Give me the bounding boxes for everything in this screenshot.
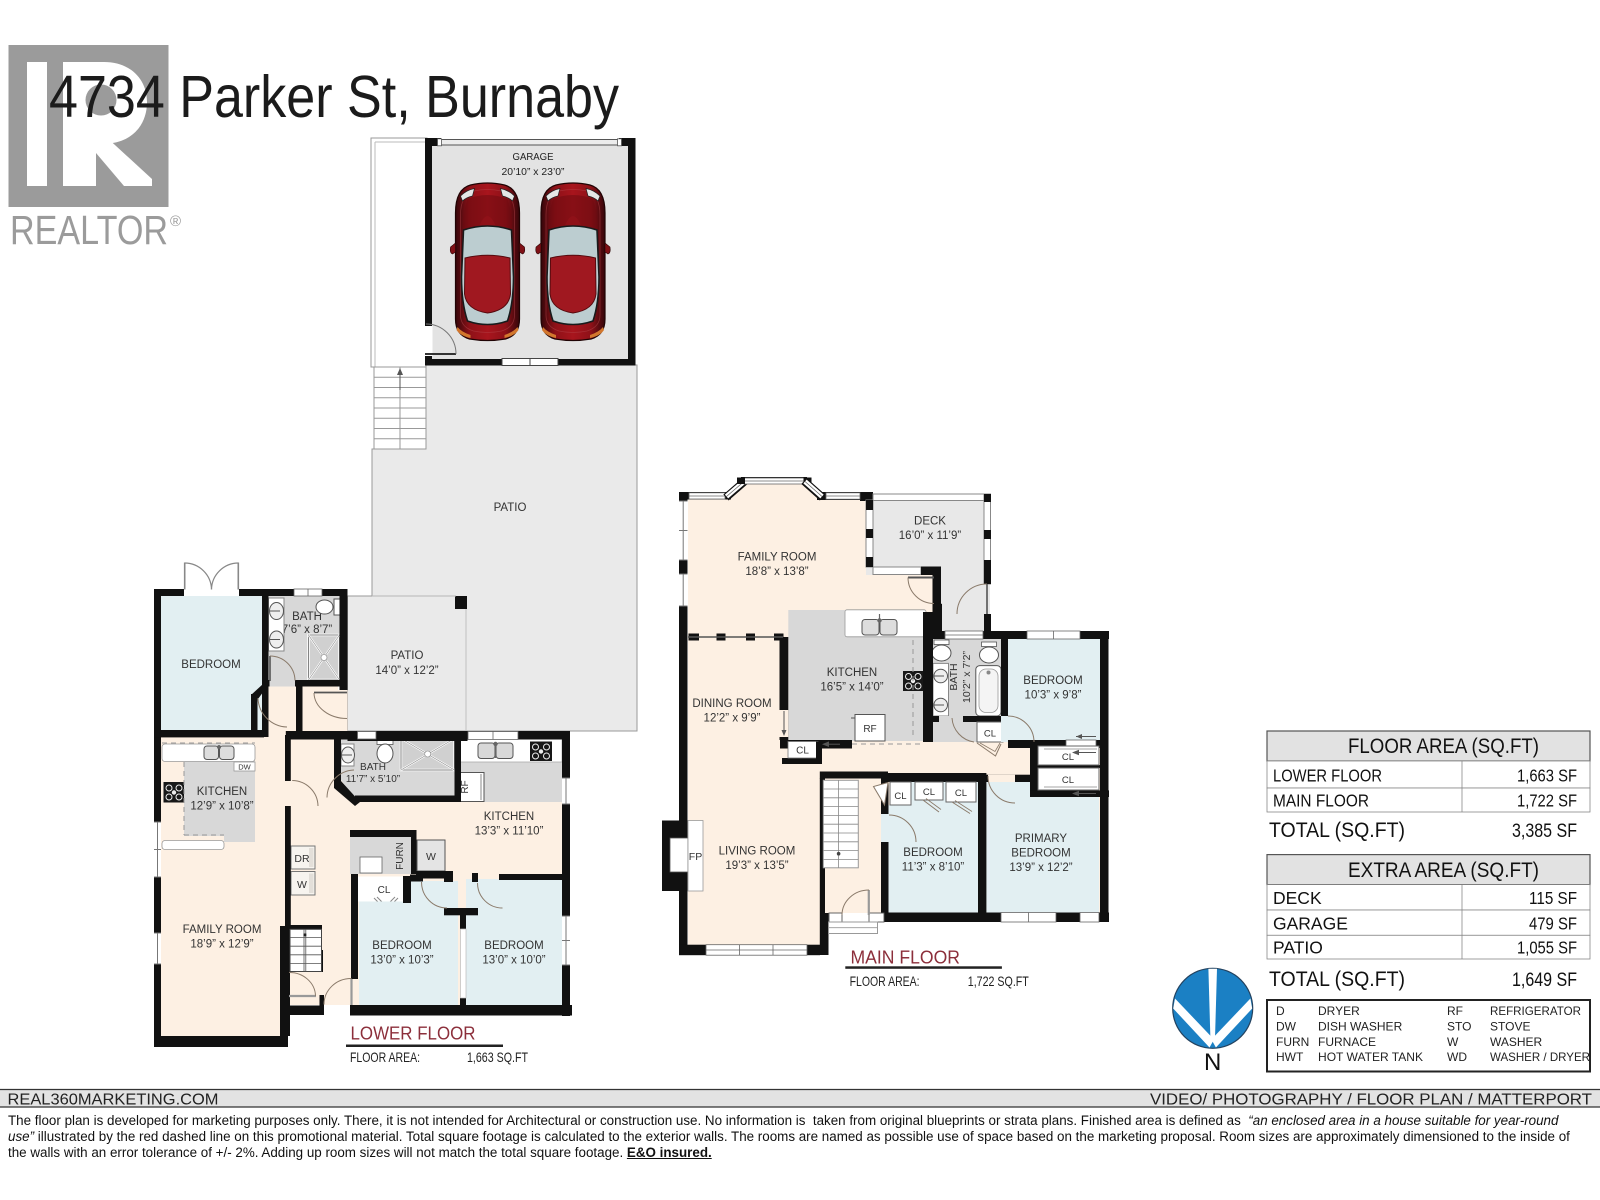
- svg-text:FP: FP: [689, 851, 702, 863]
- svg-text:REALTOR: REALTOR: [10, 207, 168, 253]
- svg-text:RF: RF: [460, 780, 471, 793]
- svg-text:PATIO: PATIO: [391, 650, 424, 662]
- svg-text:14’0” x 12’2”: 14’0” x 12’2”: [375, 665, 438, 677]
- svg-text:HWT: HWT: [1276, 1050, 1304, 1064]
- svg-text:FURN: FURN: [395, 842, 406, 870]
- svg-text:FAMILY ROOM: FAMILY ROOM: [738, 552, 817, 564]
- svg-text:KITCHEN: KITCHEN: [197, 786, 247, 798]
- svg-text:DECK: DECK: [1273, 888, 1322, 908]
- svg-text:CL: CL: [894, 791, 906, 802]
- svg-text:FURN: FURN: [1276, 1035, 1309, 1049]
- svg-text:DECK: DECK: [914, 516, 946, 528]
- svg-text:1,722 SQ.FT: 1,722 SQ.FT: [968, 973, 1029, 989]
- svg-text:19’3” x 13’5”: 19’3” x 13’5”: [725, 860, 788, 872]
- svg-text:BEDROOM: BEDROOM: [181, 659, 240, 671]
- svg-text:PATIO: PATIO: [1273, 938, 1323, 958]
- svg-text:BEDROOM: BEDROOM: [1023, 675, 1082, 687]
- svg-text:1,663 SF: 1,663 SF: [1517, 766, 1577, 786]
- svg-text:12’9” x 10’8”: 12’9” x 10’8”: [190, 801, 253, 813]
- svg-text:FAMILY ROOM: FAMILY ROOM: [183, 924, 262, 936]
- svg-text:3,385 SF: 3,385 SF: [1512, 821, 1577, 842]
- svg-text:BATH: BATH: [360, 762, 386, 773]
- svg-text:GARAGE: GARAGE: [1273, 914, 1348, 934]
- svg-text:STO: STO: [1447, 1020, 1471, 1034]
- svg-text:W: W: [297, 879, 307, 891]
- svg-text:18’9” x 12’9”: 18’9” x 12’9”: [190, 939, 253, 951]
- svg-text:BEDROOM: BEDROOM: [903, 847, 962, 859]
- svg-text:FLOOR AREA:: FLOOR AREA:: [850, 973, 920, 989]
- svg-text:N: N: [1204, 1049, 1221, 1076]
- svg-text:DRYER: DRYER: [1318, 1004, 1360, 1018]
- svg-text:DW: DW: [1276, 1020, 1297, 1034]
- svg-text:4734 Parker St, Burnaby: 4734 Parker St, Burnaby: [49, 64, 619, 130]
- svg-text:FLOOR AREA (SQ.FT): FLOOR AREA (SQ.FT): [1348, 734, 1539, 758]
- svg-text:18’8” x 13’8”: 18’8” x 13’8”: [745, 566, 808, 578]
- svg-text:DR: DR: [294, 853, 310, 865]
- svg-text:DW: DW: [238, 763, 251, 772]
- svg-text:WASHER / DRYER: WASHER / DRYER: [1490, 1050, 1590, 1064]
- svg-text:WD: WD: [1447, 1050, 1467, 1064]
- svg-text:BEDROOM: BEDROOM: [484, 940, 543, 952]
- svg-text:13’0” x 10’0”: 13’0” x 10’0”: [482, 955, 545, 967]
- svg-text:BATH: BATH: [292, 611, 322, 623]
- svg-text:STOVE: STOVE: [1490, 1020, 1530, 1034]
- svg-text:RF: RF: [863, 724, 876, 735]
- svg-text:CL: CL: [923, 787, 935, 798]
- svg-text:REAL360MARKETING.COM: REAL360MARKETING.COM: [8, 1092, 219, 1109]
- svg-text:REFRIGERATOR: REFRIGERATOR: [1490, 1004, 1581, 1018]
- svg-text:D: D: [1276, 1004, 1285, 1018]
- svg-text:LIVING ROOM: LIVING ROOM: [719, 846, 796, 858]
- svg-text:CL: CL: [1062, 775, 1074, 786]
- svg-text:479 SF: 479 SF: [1529, 914, 1577, 934]
- svg-text:11’3” x 8’10”: 11’3” x 8’10”: [902, 862, 965, 874]
- svg-text:HOT WATER TANK: HOT WATER TANK: [1318, 1050, 1423, 1064]
- svg-text:TOTAL (SQ.FT): TOTAL (SQ.FT): [1269, 967, 1405, 991]
- svg-text:10’2” x 7’2”: 10’2” x 7’2”: [961, 651, 973, 703]
- svg-text:16’0” x 11’9”: 16’0” x 11’9”: [899, 530, 962, 542]
- svg-text:GARAGE: GARAGE: [513, 151, 554, 163]
- svg-text:10’3” x 9’8”: 10’3” x 9’8”: [1025, 690, 1082, 702]
- svg-text:CL: CL: [378, 885, 391, 896]
- svg-text:1,055 SF: 1,055 SF: [1517, 938, 1577, 958]
- svg-text:BEDROOM: BEDROOM: [1011, 848, 1070, 860]
- svg-text:1,663 SQ.FT: 1,663 SQ.FT: [467, 1049, 528, 1065]
- svg-text:12’2” x 9’9”: 12’2” x 9’9”: [704, 713, 761, 725]
- svg-text:KITCHEN: KITCHEN: [484, 811, 534, 823]
- svg-text:13’0” x 10’3”: 13’0” x 10’3”: [370, 955, 433, 967]
- svg-text:CL: CL: [796, 746, 809, 757]
- svg-text:W: W: [426, 851, 436, 863]
- svg-text:®: ®: [170, 213, 181, 230]
- svg-text:DINING ROOM: DINING ROOM: [692, 698, 771, 710]
- svg-text:KITCHEN: KITCHEN: [827, 667, 877, 679]
- svg-text:MAIN FLOOR: MAIN FLOOR: [851, 947, 961, 968]
- svg-text:115 SF: 115 SF: [1529, 888, 1577, 908]
- svg-text:13’9” x 12’2”: 13’9” x 12’2”: [1009, 862, 1072, 874]
- svg-text:20’10” x 23’0”: 20’10” x 23’0”: [502, 166, 565, 178]
- svg-text:CL: CL: [984, 729, 996, 740]
- svg-text:FURNACE: FURNACE: [1318, 1035, 1376, 1049]
- svg-text:CL: CL: [955, 788, 967, 799]
- svg-text:EXTRA AREA (SQ.FT): EXTRA AREA (SQ.FT): [1348, 858, 1539, 882]
- svg-text:16’5” x 14’0”: 16’5” x 14’0”: [820, 682, 883, 694]
- svg-text:RF: RF: [1447, 1004, 1463, 1018]
- svg-text:MAIN FLOOR: MAIN FLOOR: [1273, 791, 1369, 811]
- svg-text:PRIMARY: PRIMARY: [1015, 833, 1068, 845]
- svg-text:FLOOR AREA:: FLOOR AREA:: [350, 1049, 420, 1065]
- svg-text:DISH WASHER: DISH WASHER: [1318, 1020, 1403, 1034]
- svg-text:13’3” x 11’10”: 13’3” x 11’10”: [475, 826, 544, 838]
- svg-text:11’7” x 5’10”: 11’7” x 5’10”: [346, 774, 400, 785]
- svg-text:1,722 SF: 1,722 SF: [1517, 791, 1577, 811]
- svg-text:LOWER FLOOR: LOWER FLOOR: [1273, 766, 1382, 786]
- svg-text:W: W: [1447, 1035, 1459, 1049]
- svg-text:BATH: BATH: [948, 663, 960, 690]
- svg-text:VIDEO/ PHOTOGRAPHY / FLOOR PLA: VIDEO/ PHOTOGRAPHY / FLOOR PLAN / MATTER…: [1150, 1092, 1592, 1109]
- svg-text:LOWER FLOOR: LOWER FLOOR: [351, 1023, 476, 1044]
- svg-text:WASHER: WASHER: [1490, 1035, 1543, 1049]
- svg-text:CL: CL: [1062, 752, 1074, 763]
- svg-text:1,649 SF: 1,649 SF: [1512, 970, 1577, 991]
- svg-text:TOTAL (SQ.FT): TOTAL (SQ.FT): [1269, 818, 1405, 842]
- svg-text:PATIO: PATIO: [494, 502, 527, 514]
- svg-text:BEDROOM: BEDROOM: [372, 940, 431, 952]
